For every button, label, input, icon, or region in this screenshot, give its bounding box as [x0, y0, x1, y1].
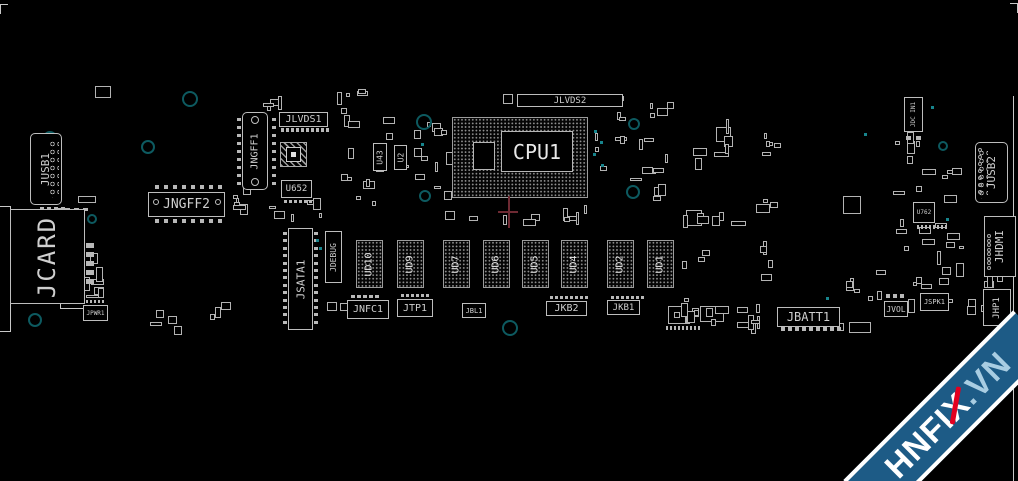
passive-component [697, 216, 709, 224]
passive-component [96, 267, 104, 282]
connector-jngff2[interactable]: JNGFF2 [148, 192, 225, 217]
pin [314, 313, 318, 316]
pad-circle [987, 261, 991, 265]
passive-component [895, 141, 900, 145]
pin [550, 296, 553, 299]
mount-hole [626, 185, 640, 199]
pin [314, 284, 318, 287]
passive-component [650, 113, 655, 118]
test-point [593, 153, 596, 156]
pin [237, 142, 241, 145]
pin [102, 300, 104, 303]
pin [682, 326, 684, 330]
passive-component [942, 175, 948, 179]
passive-component [907, 156, 913, 165]
boardview-canvas: JUSB1 JCARD JPWR1 JNGFF2 JNGFF1 JLVDS1 U… [0, 0, 1018, 481]
pin [209, 185, 213, 189]
passive-component [346, 93, 350, 97]
component-outline [908, 299, 915, 313]
passive-component [435, 162, 439, 173]
passive-component [766, 141, 771, 148]
component-outline [78, 196, 96, 203]
pin [421, 294, 424, 297]
pin [237, 158, 241, 161]
passive-component [348, 121, 361, 128]
pin [351, 295, 355, 298]
pin [309, 200, 312, 203]
pin [314, 269, 318, 272]
cpu-die-small [473, 142, 495, 170]
pin [86, 243, 94, 248]
pin [237, 182, 241, 185]
passive-component [263, 103, 274, 107]
pin [237, 150, 241, 153]
pin [326, 128, 329, 132]
passive-component [503, 215, 507, 225]
pin [272, 126, 276, 129]
connector-hole [251, 178, 259, 186]
dimension-crosshair-h [498, 211, 518, 213]
pad-circle [978, 148, 982, 152]
pin [906, 136, 911, 140]
pin [272, 158, 276, 161]
pin [304, 200, 307, 203]
component-outline [95, 86, 111, 98]
pin [795, 327, 799, 331]
passive-component [904, 246, 909, 251]
passive-component [348, 148, 354, 160]
passive-component [751, 320, 760, 325]
passive-component [939, 278, 950, 285]
passive-component [366, 179, 371, 187]
pin [281, 128, 284, 132]
passive-component [956, 263, 964, 277]
pin [173, 219, 177, 223]
mount-hole [182, 91, 198, 107]
connector-jkb1[interactable]: JKB1 [607, 300, 640, 315]
pin [86, 279, 94, 284]
memory-chip-ud7[interactable]: UD7 [443, 240, 470, 288]
pad-circle [978, 176, 982, 180]
component-outline [843, 196, 861, 214]
connector-jvol[interactable]: JVOL [884, 301, 908, 317]
passive-component [372, 201, 376, 206]
passive-component [682, 261, 687, 269]
pin [283, 284, 287, 287]
connector-jnfc1[interactable]: JNFC1 [347, 300, 389, 319]
passive-component [893, 191, 906, 195]
passive-component [763, 199, 768, 203]
passive-component [619, 117, 625, 122]
pad-circle [987, 257, 991, 261]
passive-component [233, 195, 239, 199]
memory-chip-ud10[interactable]: UD10 [356, 240, 383, 288]
passive-component [921, 284, 932, 289]
pin [98, 300, 100, 303]
pin [272, 182, 276, 185]
pin [641, 296, 644, 299]
test-point [319, 247, 322, 250]
board-edge [60, 308, 83, 309]
pin [286, 128, 289, 132]
pin [781, 327, 785, 331]
passive-component [946, 242, 955, 247]
component-outline [503, 94, 513, 104]
passive-component [952, 168, 962, 175]
pin [321, 128, 324, 132]
memory-chip-ud5[interactable]: UD5 [522, 240, 549, 288]
mount-hole [419, 190, 431, 202]
pin [670, 326, 672, 330]
connector-jsata1[interactable]: JSATA1 [288, 228, 313, 330]
connector-jbatt1[interactable]: JBATT1 [777, 307, 840, 327]
passive-component [944, 195, 957, 203]
mount-hole [141, 140, 155, 154]
pin [314, 306, 318, 309]
pin [426, 294, 429, 297]
pin [283, 269, 287, 272]
pin [301, 128, 304, 132]
pin [182, 219, 186, 223]
qfn-chip [280, 142, 307, 167]
memory-chip-ud4[interactable]: UD4 [561, 240, 588, 288]
pin [237, 166, 241, 169]
passive-component [694, 310, 700, 316]
pin [272, 142, 276, 145]
passive-component [706, 308, 714, 317]
board-edge [0, 4, 8, 5]
pin [416, 294, 419, 297]
connector-jlvds1[interactable]: JLVDS1 [279, 112, 328, 127]
pin [283, 262, 287, 265]
pin [314, 232, 318, 235]
pin [631, 296, 634, 299]
pin [191, 219, 195, 223]
pad-circle [978, 190, 982, 194]
passive-component [644, 138, 654, 142]
pin [283, 321, 287, 324]
passive-component [278, 96, 283, 110]
test-point [946, 218, 949, 221]
pin [411, 294, 414, 297]
pin [694, 326, 696, 330]
board-edge [0, 4, 1, 14]
passive-component [900, 219, 904, 227]
memory-chip-ud6[interactable]: UD6 [483, 240, 510, 288]
pin [816, 327, 820, 331]
test-point [316, 239, 319, 242]
pin [314, 321, 318, 324]
passive-component [681, 303, 688, 316]
qfn-pin1-dot [291, 152, 296, 157]
pin [94, 300, 96, 303]
passive-component [761, 274, 772, 281]
passive-component [942, 267, 951, 275]
passive-component [215, 307, 221, 318]
passive-component [774, 143, 780, 148]
passive-component [441, 130, 447, 135]
pin [86, 270, 94, 275]
mount-hole [28, 313, 42, 327]
connector-hole [215, 199, 221, 205]
passive-component [445, 211, 455, 220]
passive-component [653, 196, 662, 201]
passive-component [210, 314, 215, 320]
connector-jcard[interactable]: JCARD [10, 209, 85, 304]
connector-hole [251, 116, 259, 124]
pad-circle [978, 169, 982, 173]
passive-component [358, 89, 366, 93]
pin [237, 174, 241, 177]
connector-jusb1[interactable]: JUSB1 [30, 133, 62, 205]
passive-component [762, 152, 771, 156]
passive-component [576, 212, 580, 224]
pin [929, 225, 931, 229]
passive-component [469, 216, 478, 221]
pin [272, 174, 276, 177]
pin [155, 185, 159, 189]
passive-component [653, 168, 665, 173]
passive-component [414, 130, 421, 139]
chip-u43[interactable]: U43 [373, 143, 387, 171]
pad-circle [987, 252, 991, 256]
passive-component [421, 156, 428, 161]
pin [283, 306, 287, 309]
connector-jdcin1[interactable]: JDC IN1 [904, 97, 923, 132]
connector-jpwr1[interactable]: JPWR1 [83, 305, 108, 321]
pin [802, 327, 806, 331]
passive-component [697, 213, 704, 217]
pin [893, 294, 897, 298]
passive-component [174, 326, 182, 335]
pad-circle [987, 243, 991, 247]
pad-circle [978, 183, 982, 187]
connector-jdebug[interactable]: JDEBUG [325, 231, 342, 283]
board-edge [1013, 96, 1014, 481]
passive-component [959, 246, 963, 249]
pin [314, 276, 318, 279]
memory-chip-ud1[interactable]: UD1 [647, 240, 674, 288]
pin [690, 326, 692, 330]
pin [237, 126, 241, 129]
passive-component [916, 277, 922, 284]
passive-component [764, 133, 767, 138]
pin [830, 327, 834, 331]
passive-component [658, 184, 666, 196]
passive-component [726, 119, 729, 134]
chip-u762[interactable]: U762 [913, 202, 935, 223]
passive-component [967, 306, 976, 315]
pin [299, 200, 302, 203]
passive-component [168, 316, 177, 324]
passive-component [916, 141, 920, 147]
pin [314, 299, 318, 302]
passive-component [868, 296, 873, 301]
pin [565, 296, 568, 299]
memory-chip-ud2[interactable]: UD2 [607, 240, 634, 288]
pin [917, 225, 919, 229]
component-outline [674, 312, 680, 318]
passive-component [584, 205, 587, 214]
pin [90, 300, 92, 303]
pin [560, 296, 563, 299]
connector-hole [153, 199, 159, 205]
pin [369, 295, 373, 298]
pin [314, 262, 318, 265]
pin [164, 185, 168, 189]
cpu-label: CPU1 [513, 140, 561, 164]
test-point [864, 133, 867, 136]
test-point [600, 141, 603, 144]
passive-component [770, 202, 779, 208]
passive-component [877, 291, 881, 300]
passive-component [756, 304, 760, 314]
passive-component [876, 270, 886, 275]
pin [886, 294, 890, 298]
pin [698, 326, 700, 330]
passive-component [756, 204, 770, 213]
passive-component [341, 108, 347, 114]
cpu-die-main[interactable]: CPU1 [501, 131, 573, 172]
mount-hole [416, 114, 432, 130]
passive-component [916, 186, 922, 192]
watermark-text: HNFIX.VN [877, 344, 1018, 481]
pin [283, 313, 287, 316]
pin [937, 225, 939, 229]
passive-component [630, 178, 642, 182]
pin [900, 294, 904, 298]
passive-component [896, 229, 907, 233]
passive-component [642, 167, 653, 174]
passive-component [715, 306, 729, 315]
pin [209, 219, 213, 223]
pin [674, 326, 676, 330]
pin [823, 327, 827, 331]
passive-component [702, 250, 710, 257]
pin [555, 296, 558, 299]
passive-component [156, 310, 165, 319]
pin [616, 296, 619, 299]
passive-component [341, 174, 349, 181]
pin [306, 128, 309, 132]
pin [283, 254, 287, 257]
passive-component [711, 319, 716, 326]
passive-component [356, 196, 362, 200]
pin [570, 296, 573, 299]
watermark-banner: HNFIX.VN [843, 310, 1018, 481]
passive-component [846, 281, 853, 287]
connector-jkb2[interactable]: JKB2 [546, 301, 587, 316]
pin [314, 247, 318, 250]
pad-circle [978, 155, 982, 159]
test-point [931, 106, 934, 109]
passive-component [313, 198, 321, 210]
mount-hole [87, 214, 97, 224]
passive-component [386, 133, 394, 139]
passive-component [854, 289, 859, 293]
connector-jlvds2[interactable]: JLVDS2 [517, 94, 623, 107]
passive-component [434, 186, 441, 190]
pin [580, 296, 583, 299]
pin [191, 185, 195, 189]
pin [585, 296, 588, 299]
pin [678, 326, 680, 330]
mount-hole [628, 118, 640, 130]
passive-component [444, 191, 453, 200]
passive-component [595, 133, 598, 142]
passive-component [695, 158, 702, 170]
passive-component [564, 217, 570, 221]
chip-u2[interactable]: U2 [394, 145, 407, 170]
pin [314, 291, 318, 294]
pin [86, 261, 94, 266]
passive-component [150, 322, 162, 327]
pad-circle [987, 234, 991, 238]
pin [916, 136, 921, 140]
chip-u652[interactable]: U652 [281, 180, 312, 198]
connector-jspk1[interactable]: JSPK1 [920, 293, 949, 311]
board-edge [0, 206, 10, 207]
passive-component [383, 117, 395, 124]
mount-hole [502, 320, 518, 336]
pin [316, 128, 319, 132]
passive-component [768, 260, 774, 268]
pin [363, 295, 367, 298]
pad-circle [987, 266, 991, 270]
pin [272, 134, 276, 137]
passive-component [947, 233, 960, 240]
passive-component [684, 298, 689, 303]
connector-jtp1[interactable]: JTP1 [397, 299, 433, 317]
pin [272, 166, 276, 169]
passive-component [922, 239, 934, 245]
passive-component [987, 275, 993, 288]
pin [182, 185, 186, 189]
pin [237, 118, 241, 121]
pin [284, 200, 287, 203]
passive-component [523, 219, 535, 227]
pin [200, 219, 204, 223]
passive-component [693, 148, 707, 156]
memory-chip-ud9[interactable]: UD9 [397, 240, 424, 288]
passive-component [319, 213, 322, 218]
passive-component [725, 144, 729, 154]
pad-circle [987, 248, 991, 252]
pin [837, 327, 841, 331]
passive-component [639, 139, 643, 150]
passive-component [620, 136, 626, 144]
passive-component [221, 302, 231, 310]
passive-component [650, 103, 653, 109]
pin [294, 200, 297, 203]
pin [283, 299, 287, 302]
test-point [421, 143, 424, 146]
passive-component [595, 147, 600, 152]
pin [945, 225, 947, 229]
pin [788, 327, 792, 331]
passive-component [291, 214, 294, 222]
pin [686, 326, 688, 330]
pin [621, 296, 624, 299]
passive-component [98, 288, 105, 298]
pin [164, 219, 168, 223]
pad-circle [978, 162, 982, 166]
pin [272, 150, 276, 153]
connector-jbl1[interactable]: JBL1 [462, 303, 486, 318]
pin [925, 225, 927, 229]
pin [283, 247, 287, 250]
passive-component [922, 169, 936, 175]
